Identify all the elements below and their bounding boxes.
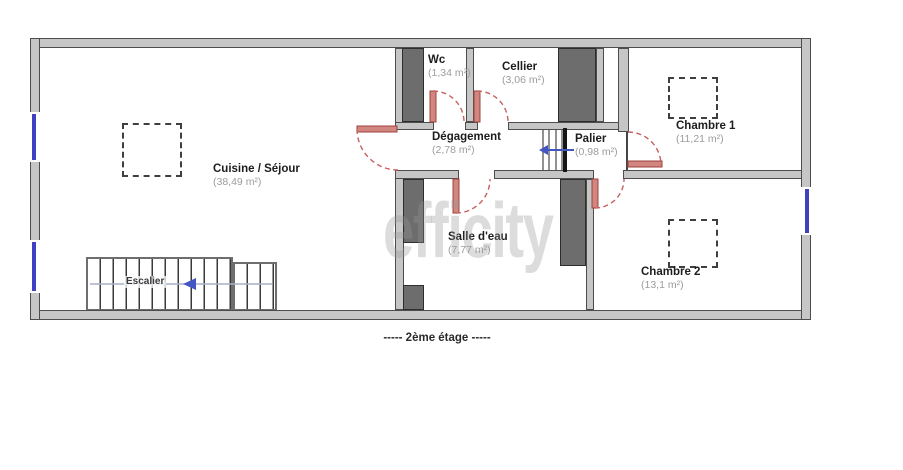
room-label-palier: Palier (0,98 m²) [575,133,618,158]
stair-direction-arrow-icon [183,278,196,290]
room-area: (13,1 m²) [641,279,700,291]
room-name: Palier [575,133,618,146]
room-label-degagement: Dégagement (2,78 m²) [432,131,501,156]
room-name: Chambre 1 [676,120,735,133]
room-area: (38,49 m²) [213,176,300,188]
room-label-chambre2: Chambre 2 (13,1 m²) [641,266,700,291]
floor-plan: Cuisine / Séjour (38,49 m²) Wc (1,34 m²)… [0,0,903,470]
stairs-label: Escalier [124,276,166,288]
floor-caption: ----- 2ème étage ----- [312,332,562,344]
room-area: (3,06 m²) [502,74,545,86]
room-area: (2,78 m²) [432,144,501,156]
room-name: Wc [428,54,471,67]
room-label-cellier: Cellier (3,06 m²) [502,61,545,86]
room-area: (11,21 m²) [676,133,735,145]
room-label-salle-eau: Salle d'eau (7,77 m²) [448,231,508,256]
room-area: (0,98 m²) [575,146,618,158]
room-name: Cuisine / Séjour [213,163,300,176]
room-label-wc: Wc (1,34 m²) [428,54,471,79]
room-name: Chambre 2 [641,266,700,279]
room-name: Salle d'eau [448,231,508,244]
room-label-cuisine: Cuisine / Séjour (38,49 m²) [213,163,300,188]
room-name: Cellier [502,61,545,74]
room-area: (1,34 m²) [428,67,471,79]
room-label-chambre1: Chambre 1 (11,21 m²) [676,120,735,145]
room-name: Dégagement [432,131,501,144]
room-area: (7,77 m²) [448,244,508,256]
